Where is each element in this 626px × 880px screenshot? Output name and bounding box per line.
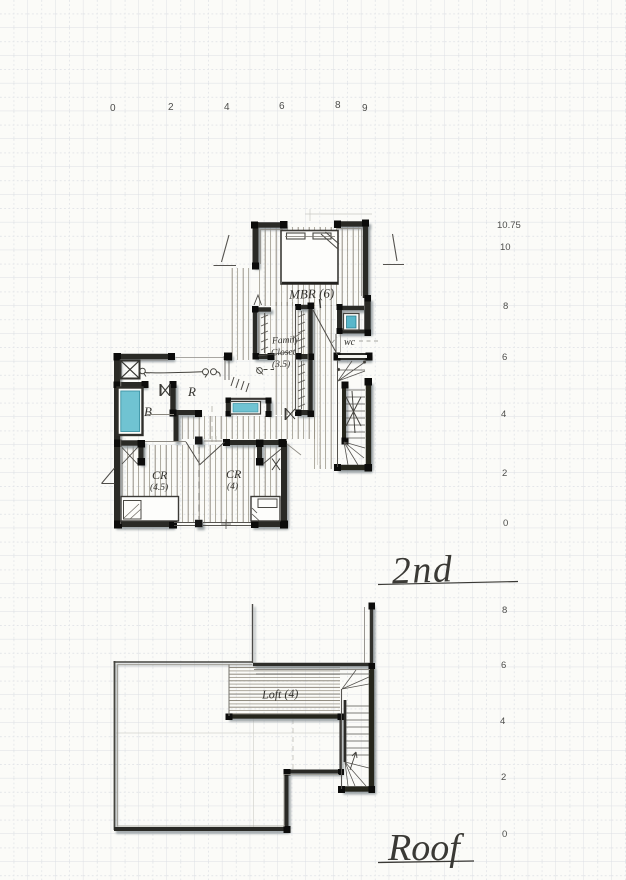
svg-text:2: 2 xyxy=(168,102,174,113)
svg-text:(4.5): (4.5) xyxy=(150,482,168,493)
svg-text:4: 4 xyxy=(501,409,506,420)
svg-text:0: 0 xyxy=(503,518,508,529)
svg-text:10: 10 xyxy=(500,242,511,253)
svg-text:4: 4 xyxy=(500,716,505,727)
svg-text:CR: CR xyxy=(152,468,168,482)
svg-text:Loft (4): Loft (4) xyxy=(261,686,299,701)
svg-text:10.75: 10.75 xyxy=(497,220,521,231)
svg-text:(3.5): (3.5) xyxy=(272,359,290,370)
svg-text:wc: wc xyxy=(344,337,356,348)
svg-text:8: 8 xyxy=(335,100,341,111)
svg-text:(4): (4) xyxy=(227,481,238,492)
svg-text:2nd: 2nd xyxy=(391,548,454,592)
svg-text:CR: CR xyxy=(226,467,242,481)
svg-text:0: 0 xyxy=(502,829,507,840)
svg-text:6: 6 xyxy=(502,352,507,363)
svg-text:0: 0 xyxy=(110,103,116,114)
svg-text:MBR (6): MBR (6) xyxy=(288,285,335,302)
svg-text:6: 6 xyxy=(501,660,506,671)
svg-text:2: 2 xyxy=(501,772,506,783)
svg-text:6: 6 xyxy=(279,101,285,112)
svg-text:8: 8 xyxy=(502,605,507,616)
svg-text:R: R xyxy=(187,384,196,399)
svg-text:4: 4 xyxy=(224,102,230,113)
svg-text:9: 9 xyxy=(362,103,368,114)
svg-text:2: 2 xyxy=(502,468,507,479)
svg-text:B: B xyxy=(144,404,152,419)
svg-text:8: 8 xyxy=(503,301,508,312)
